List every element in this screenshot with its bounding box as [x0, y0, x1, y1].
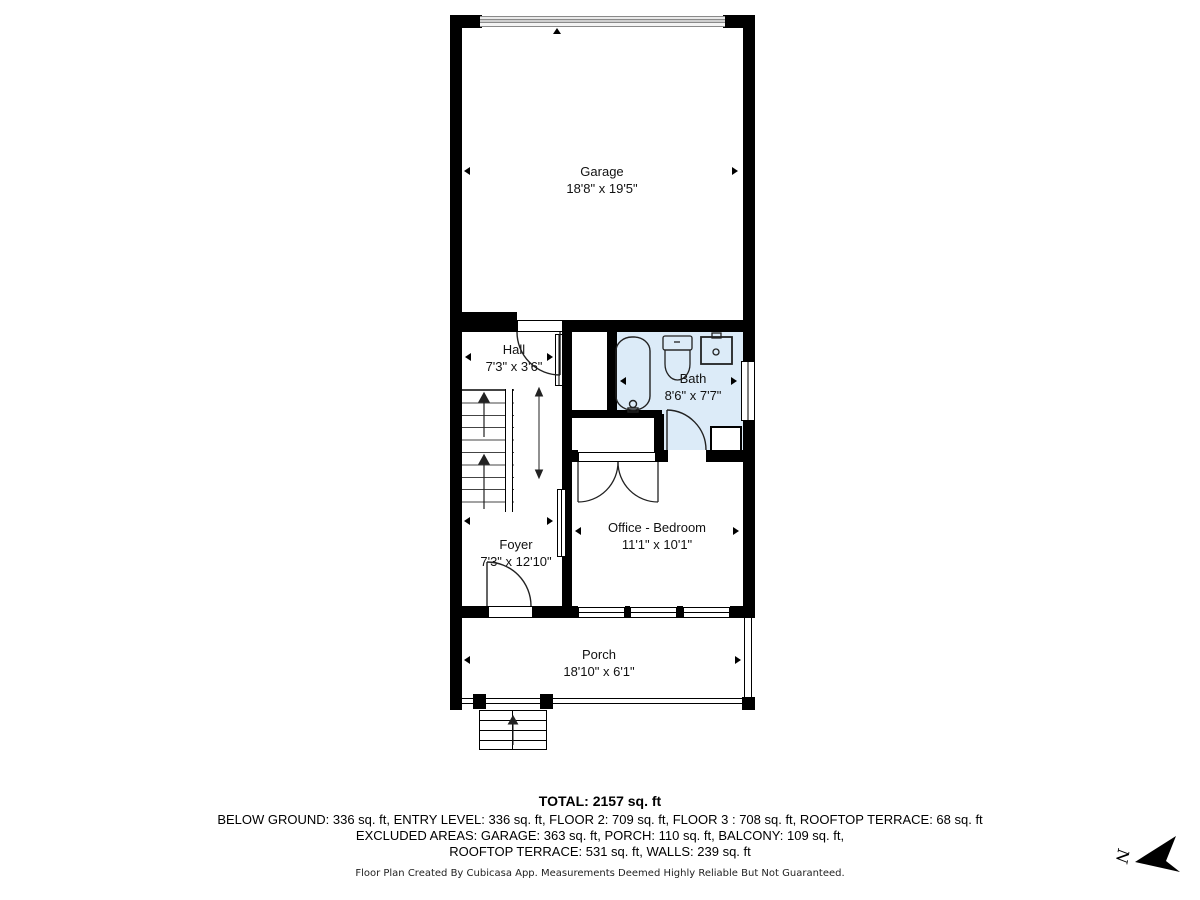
porch-post — [742, 697, 755, 710]
wall — [562, 450, 578, 462]
measure-arrow — [547, 517, 553, 525]
window — [630, 607, 677, 618]
window — [683, 607, 730, 618]
wall — [562, 332, 572, 606]
room-label-garage: Garage 18'8" x 19'5" — [566, 163, 637, 197]
room-name: Bath — [665, 370, 722, 387]
room-label-bath: Bath 8'6" x 7'7" — [665, 370, 722, 404]
hall-window — [555, 334, 563, 386]
plan-symbols-layer — [0, 0, 1200, 900]
room-dims: 7'3" x 3'6" — [486, 358, 543, 375]
entry-door-opening — [488, 606, 533, 618]
area-breakdown-line2: EXCLUDED AREAS: GARAGE: 363 sq. ft, PORC… — [0, 828, 1200, 844]
wall — [450, 606, 488, 618]
measure-arrow — [464, 517, 470, 525]
garage-door — [480, 16, 725, 27]
room-name: Foyer — [480, 536, 551, 553]
measure-arrow — [733, 527, 739, 535]
porch-post — [540, 694, 553, 709]
room-label-hall: Hall 7'3" x 3'6" — [486, 341, 543, 375]
room-dims: 7'3" x 12'10" — [480, 553, 551, 570]
room-label-office-bedroom: Office - Bedroom 11'1" x 10'1" — [608, 519, 706, 553]
measure-arrow — [553, 28, 561, 34]
bath-niche — [710, 426, 742, 452]
room-name: Hall — [486, 341, 543, 358]
room-dims: 8'6" x 7'7" — [665, 387, 722, 404]
measure-arrow — [731, 377, 737, 385]
floor-plan-canvas: Garage 18'8" x 19'5" Hall 7'3" x 3'6" Ba… — [0, 0, 1200, 900]
room-dims: 11'1" x 10'1" — [608, 536, 706, 553]
porch-post — [473, 694, 486, 709]
room-dims: 18'8" x 19'5" — [566, 180, 637, 197]
measure-arrow — [464, 167, 470, 175]
bath-window — [741, 361, 755, 421]
measure-arrow — [547, 353, 553, 361]
wall — [743, 15, 755, 618]
door-opening — [517, 320, 563, 332]
porch-steps-divider — [512, 710, 513, 750]
room-name: Office - Bedroom — [608, 519, 706, 536]
interior-window — [557, 489, 566, 557]
stair-divider — [505, 389, 513, 512]
measure-arrow — [575, 527, 581, 535]
porch-railing — [744, 618, 752, 698]
double-door-opening — [578, 452, 656, 462]
disclaimer-text: Floor Plan Created By Cubicasa App. Meas… — [0, 867, 1200, 881]
measure-arrow — [464, 656, 470, 664]
room-name: Porch — [563, 646, 634, 663]
wall — [562, 410, 662, 418]
window — [578, 607, 625, 618]
total-area-text: TOTAL: 2157 sq. ft — [0, 793, 1200, 809]
area-breakdown-line3: ROOFTOP TERRACE: 531 sq. ft, WALLS: 239 … — [0, 844, 1200, 860]
measure-arrow — [620, 377, 626, 385]
measure-arrow — [465, 353, 471, 361]
room-label-foyer: Foyer 7'3" x 12'10" — [480, 536, 551, 570]
wall — [450, 312, 517, 332]
area-breakdown-line1: BELOW GROUND: 336 sq. ft, ENTRY LEVEL: 3… — [0, 812, 1200, 828]
porch-railing — [462, 698, 742, 704]
wall — [607, 332, 617, 414]
wall — [563, 320, 755, 332]
double-door-swing — [578, 462, 658, 502]
room-dims: 18'10" x 6'1" — [563, 663, 634, 680]
measure-arrow — [536, 388, 543, 478]
wall — [656, 450, 668, 462]
wall — [730, 606, 755, 618]
room-name: Garage — [566, 163, 637, 180]
wall — [533, 606, 578, 618]
room-label-porch: Porch 18'10" x 6'1" — [563, 646, 634, 680]
measure-arrow — [735, 656, 741, 664]
measure-arrow — [732, 167, 738, 175]
porch-steps — [479, 710, 547, 750]
wall — [450, 15, 482, 28]
